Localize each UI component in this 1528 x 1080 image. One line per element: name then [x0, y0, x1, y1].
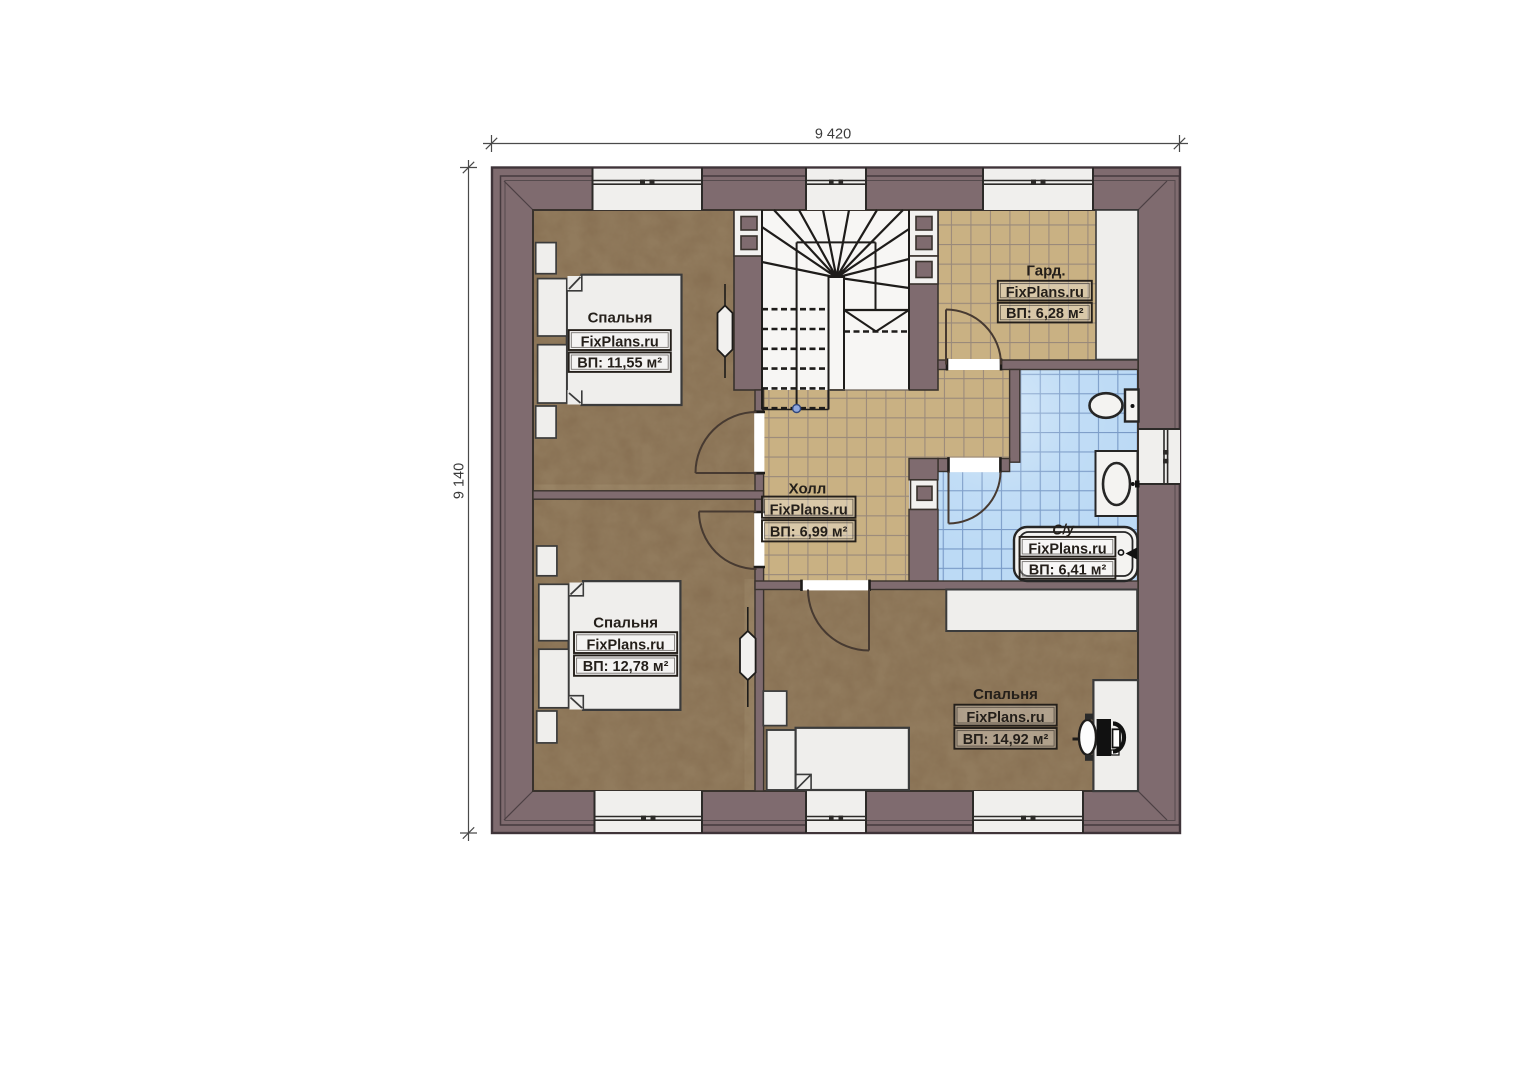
svg-text:FixPlans.ru: FixPlans.ru — [966, 710, 1044, 726]
svg-text:ВП: 6,28 м²: ВП: 6,28 м² — [1006, 306, 1084, 322]
svg-text:Спальня: Спальня — [973, 686, 1038, 703]
svg-text:ВП: 14,92 м²: ВП: 14,92 м² — [963, 732, 1049, 748]
svg-text:9 140: 9 140 — [452, 463, 468, 499]
svg-text:FixPlans.ru: FixPlans.ru — [1006, 285, 1084, 301]
svg-text:ВП: 6,99 м²: ВП: 6,99 м² — [770, 525, 848, 541]
svg-text:Гард.: Гард. — [1026, 263, 1065, 280]
svg-text:FixPlans.ru: FixPlans.ru — [770, 503, 848, 519]
svg-text:С/у: С/у — [1052, 520, 1076, 538]
svg-text:Холл: Холл — [789, 480, 827, 497]
svg-text:FixPlans.ru: FixPlans.ru — [1028, 542, 1106, 558]
svg-text:FixPlans.ru: FixPlans.ru — [587, 638, 665, 654]
svg-text:ВП: 12,78 м²: ВП: 12,78 м² — [583, 659, 669, 675]
svg-text:ВП: 6,41 м²: ВП: 6,41 м² — [1029, 563, 1107, 579]
svg-text:FixPlans.ru: FixPlans.ru — [581, 335, 659, 351]
svg-text:Спальня: Спальня — [593, 615, 658, 632]
svg-text:9 420: 9 420 — [815, 127, 851, 143]
svg-text:Спальня: Спальня — [588, 310, 653, 327]
svg-text:ВП: 11,55 м²: ВП: 11,55 м² — [577, 355, 662, 371]
